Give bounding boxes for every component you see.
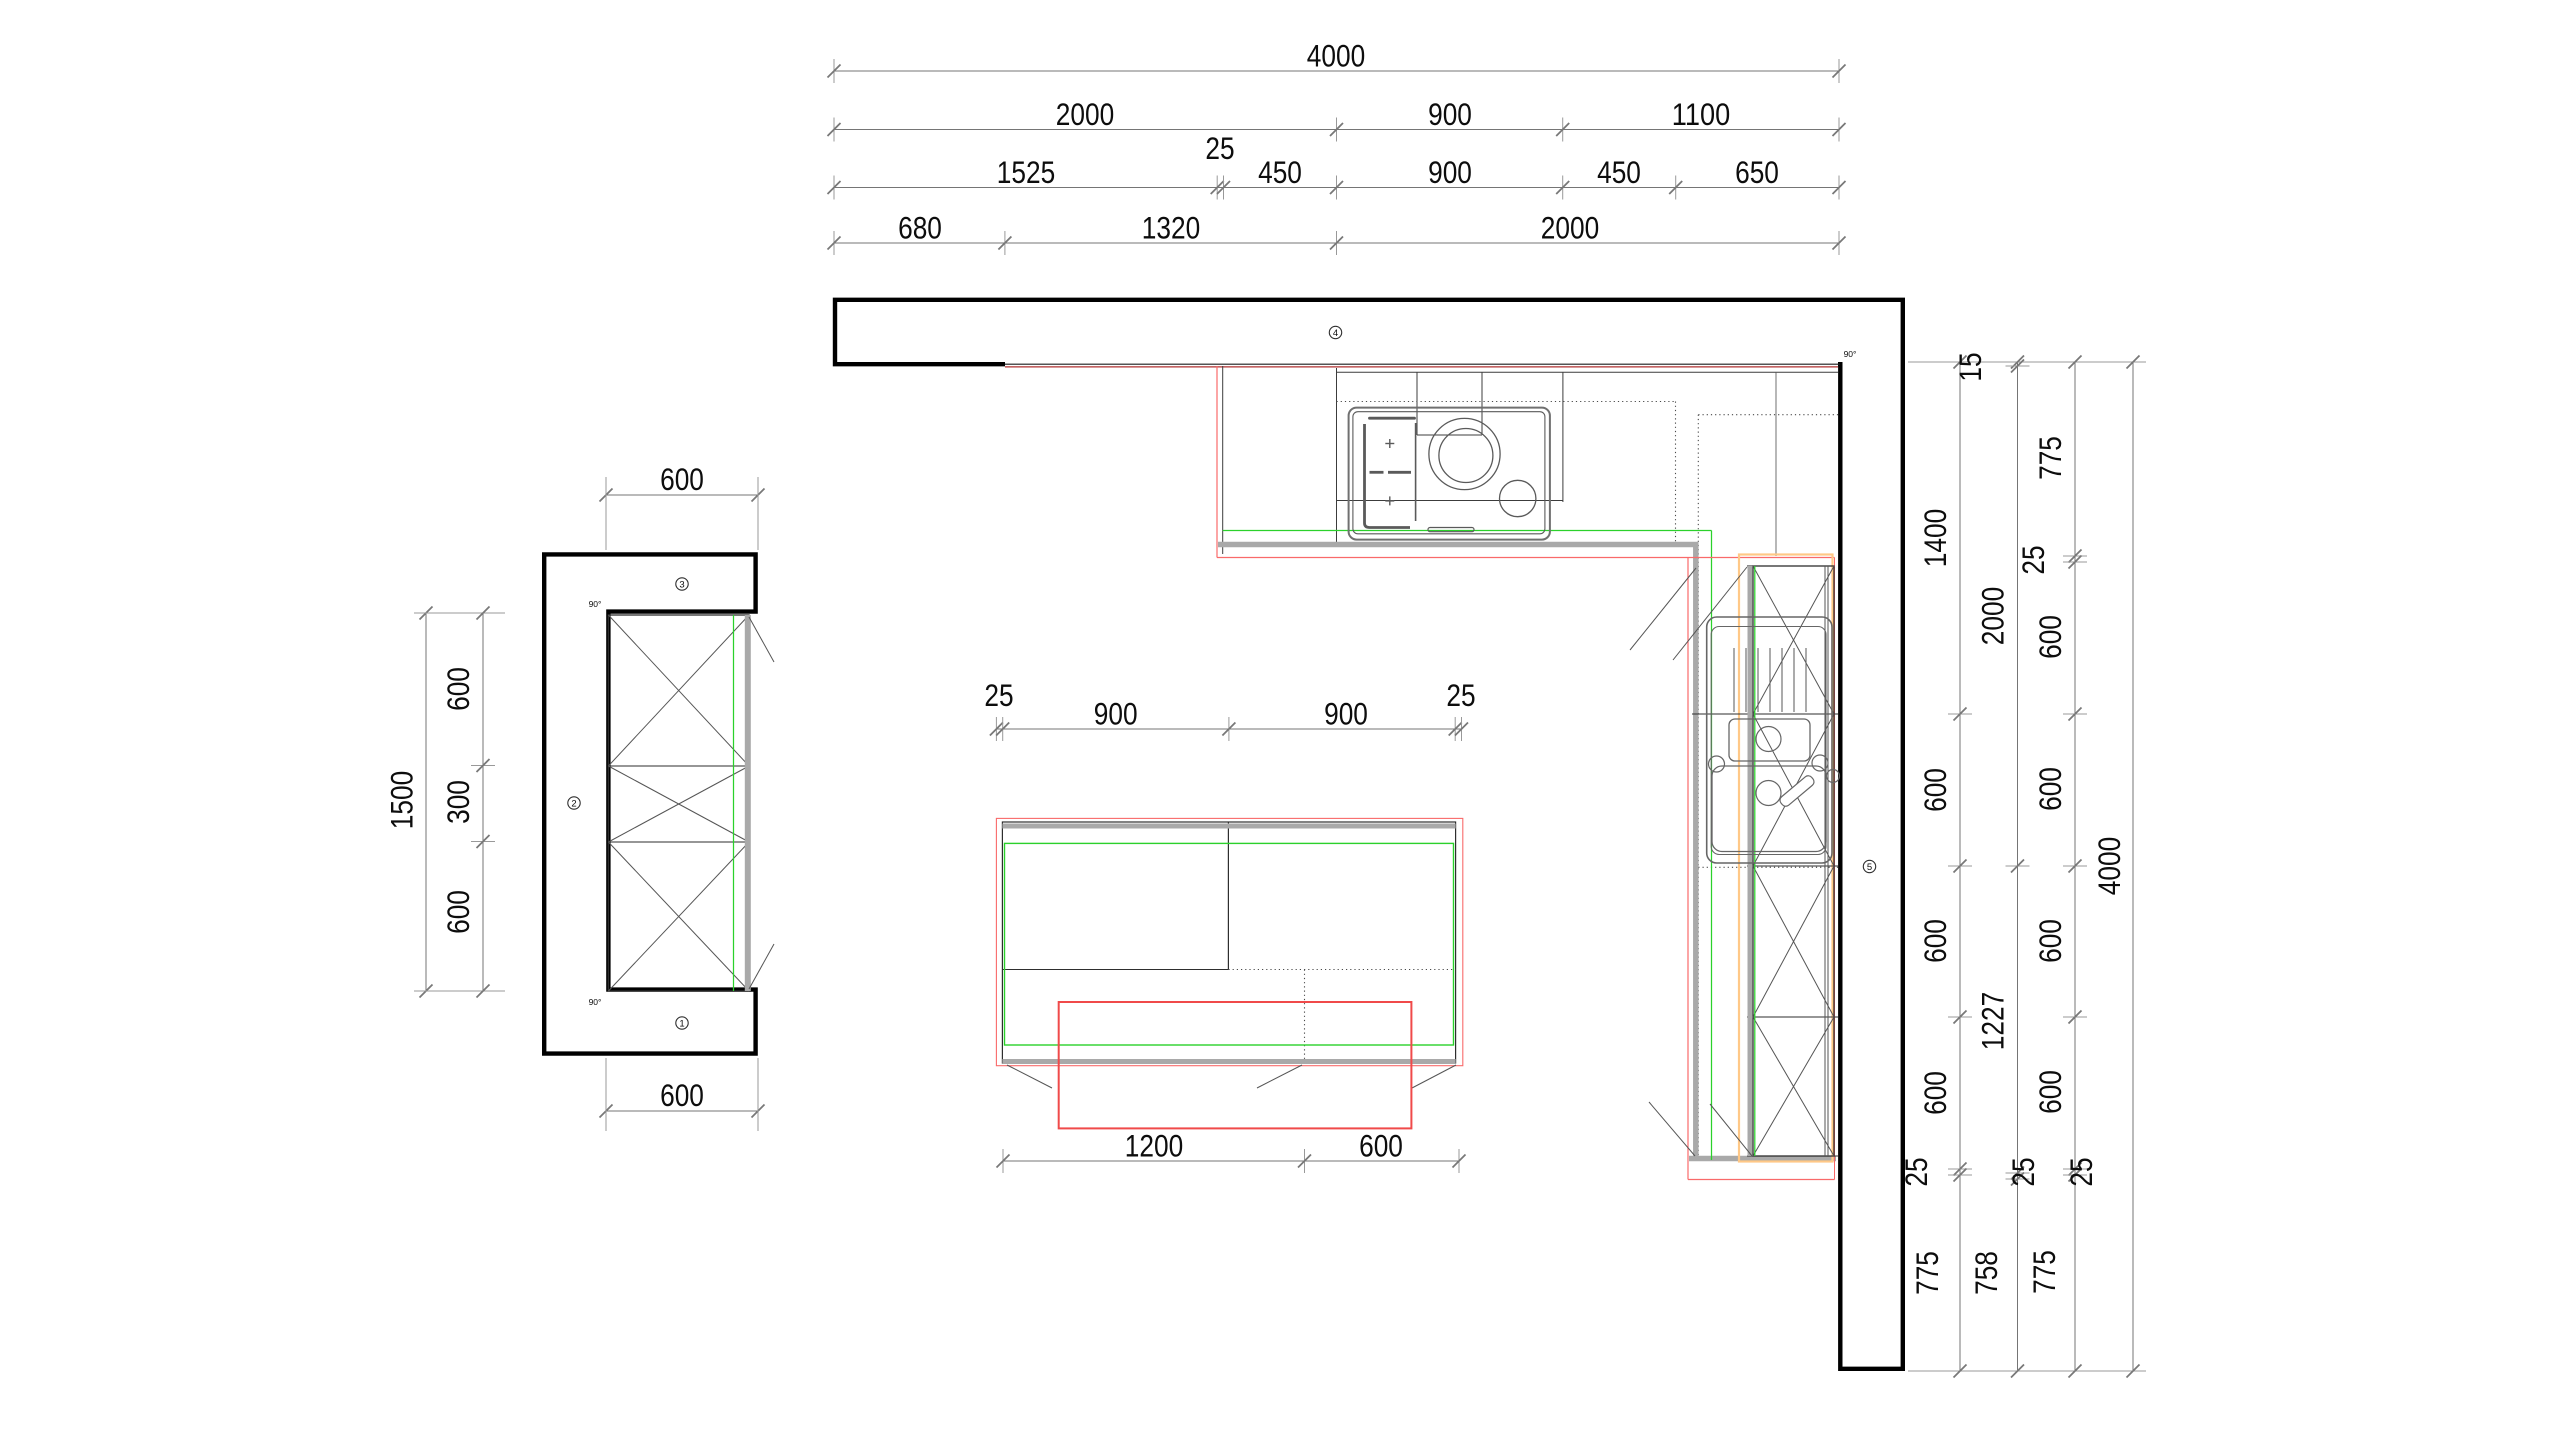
svg-text:600: 600: [2032, 1070, 2068, 1114]
svg-text:2000: 2000: [1541, 210, 1599, 246]
svg-text:2000: 2000: [1056, 96, 1114, 132]
svg-text:758: 758: [1968, 1251, 2004, 1295]
svg-text:90°: 90°: [589, 599, 602, 609]
svg-text:90°: 90°: [1844, 349, 1857, 359]
svg-text:2000: 2000: [1975, 587, 2011, 645]
svg-text:680: 680: [898, 210, 942, 246]
svg-text:775: 775: [2032, 436, 2068, 480]
svg-text:600: 600: [1917, 919, 1953, 963]
svg-text:15: 15: [1952, 352, 1988, 381]
svg-text:450: 450: [1258, 154, 1302, 190]
svg-text:650: 650: [1735, 154, 1779, 190]
svg-text:600: 600: [1917, 768, 1953, 812]
svg-text:600: 600: [660, 1077, 704, 1113]
svg-text:90°: 90°: [589, 997, 602, 1007]
svg-text:300: 300: [440, 780, 476, 824]
svg-text:2: 2: [571, 798, 576, 809]
svg-text:4000: 4000: [2091, 837, 2127, 895]
svg-text:900: 900: [1428, 154, 1472, 190]
svg-text:600: 600: [1917, 1071, 1953, 1115]
svg-text:1200: 1200: [1125, 1128, 1183, 1164]
svg-text:600: 600: [2032, 919, 2068, 963]
svg-text:1227: 1227: [1975, 992, 2011, 1050]
svg-text:600: 600: [2032, 615, 2068, 659]
svg-text:25: 25: [1446, 677, 1475, 713]
svg-text:900: 900: [1094, 696, 1138, 732]
svg-text:600: 600: [440, 667, 476, 711]
svg-text:4: 4: [1333, 328, 1338, 339]
svg-text:1: 1: [679, 1018, 684, 1029]
svg-text:25: 25: [2015, 545, 2051, 574]
svg-text:25: 25: [2063, 1157, 2099, 1186]
svg-text:600: 600: [2032, 767, 2068, 811]
svg-text:775: 775: [2026, 1250, 2062, 1294]
svg-text:900: 900: [1428, 96, 1472, 132]
svg-text:1400: 1400: [1917, 509, 1953, 567]
svg-text:450: 450: [1597, 154, 1641, 190]
svg-text:1100: 1100: [1672, 96, 1730, 132]
svg-text:600: 600: [660, 461, 704, 497]
svg-text:25: 25: [2005, 1157, 2041, 1186]
svg-text:600: 600: [1359, 1128, 1403, 1164]
svg-text:25: 25: [984, 677, 1013, 713]
svg-text:1525: 1525: [997, 154, 1055, 190]
svg-text:4000: 4000: [1307, 38, 1365, 74]
svg-text:900: 900: [1324, 696, 1368, 732]
svg-text:600: 600: [440, 890, 476, 934]
svg-text:1500: 1500: [384, 771, 420, 829]
svg-text:1320: 1320: [1142, 210, 1200, 246]
svg-text:3: 3: [679, 579, 684, 590]
svg-text:25: 25: [1205, 130, 1234, 166]
svg-text:775: 775: [1909, 1251, 1945, 1295]
svg-text:5: 5: [1867, 862, 1872, 873]
